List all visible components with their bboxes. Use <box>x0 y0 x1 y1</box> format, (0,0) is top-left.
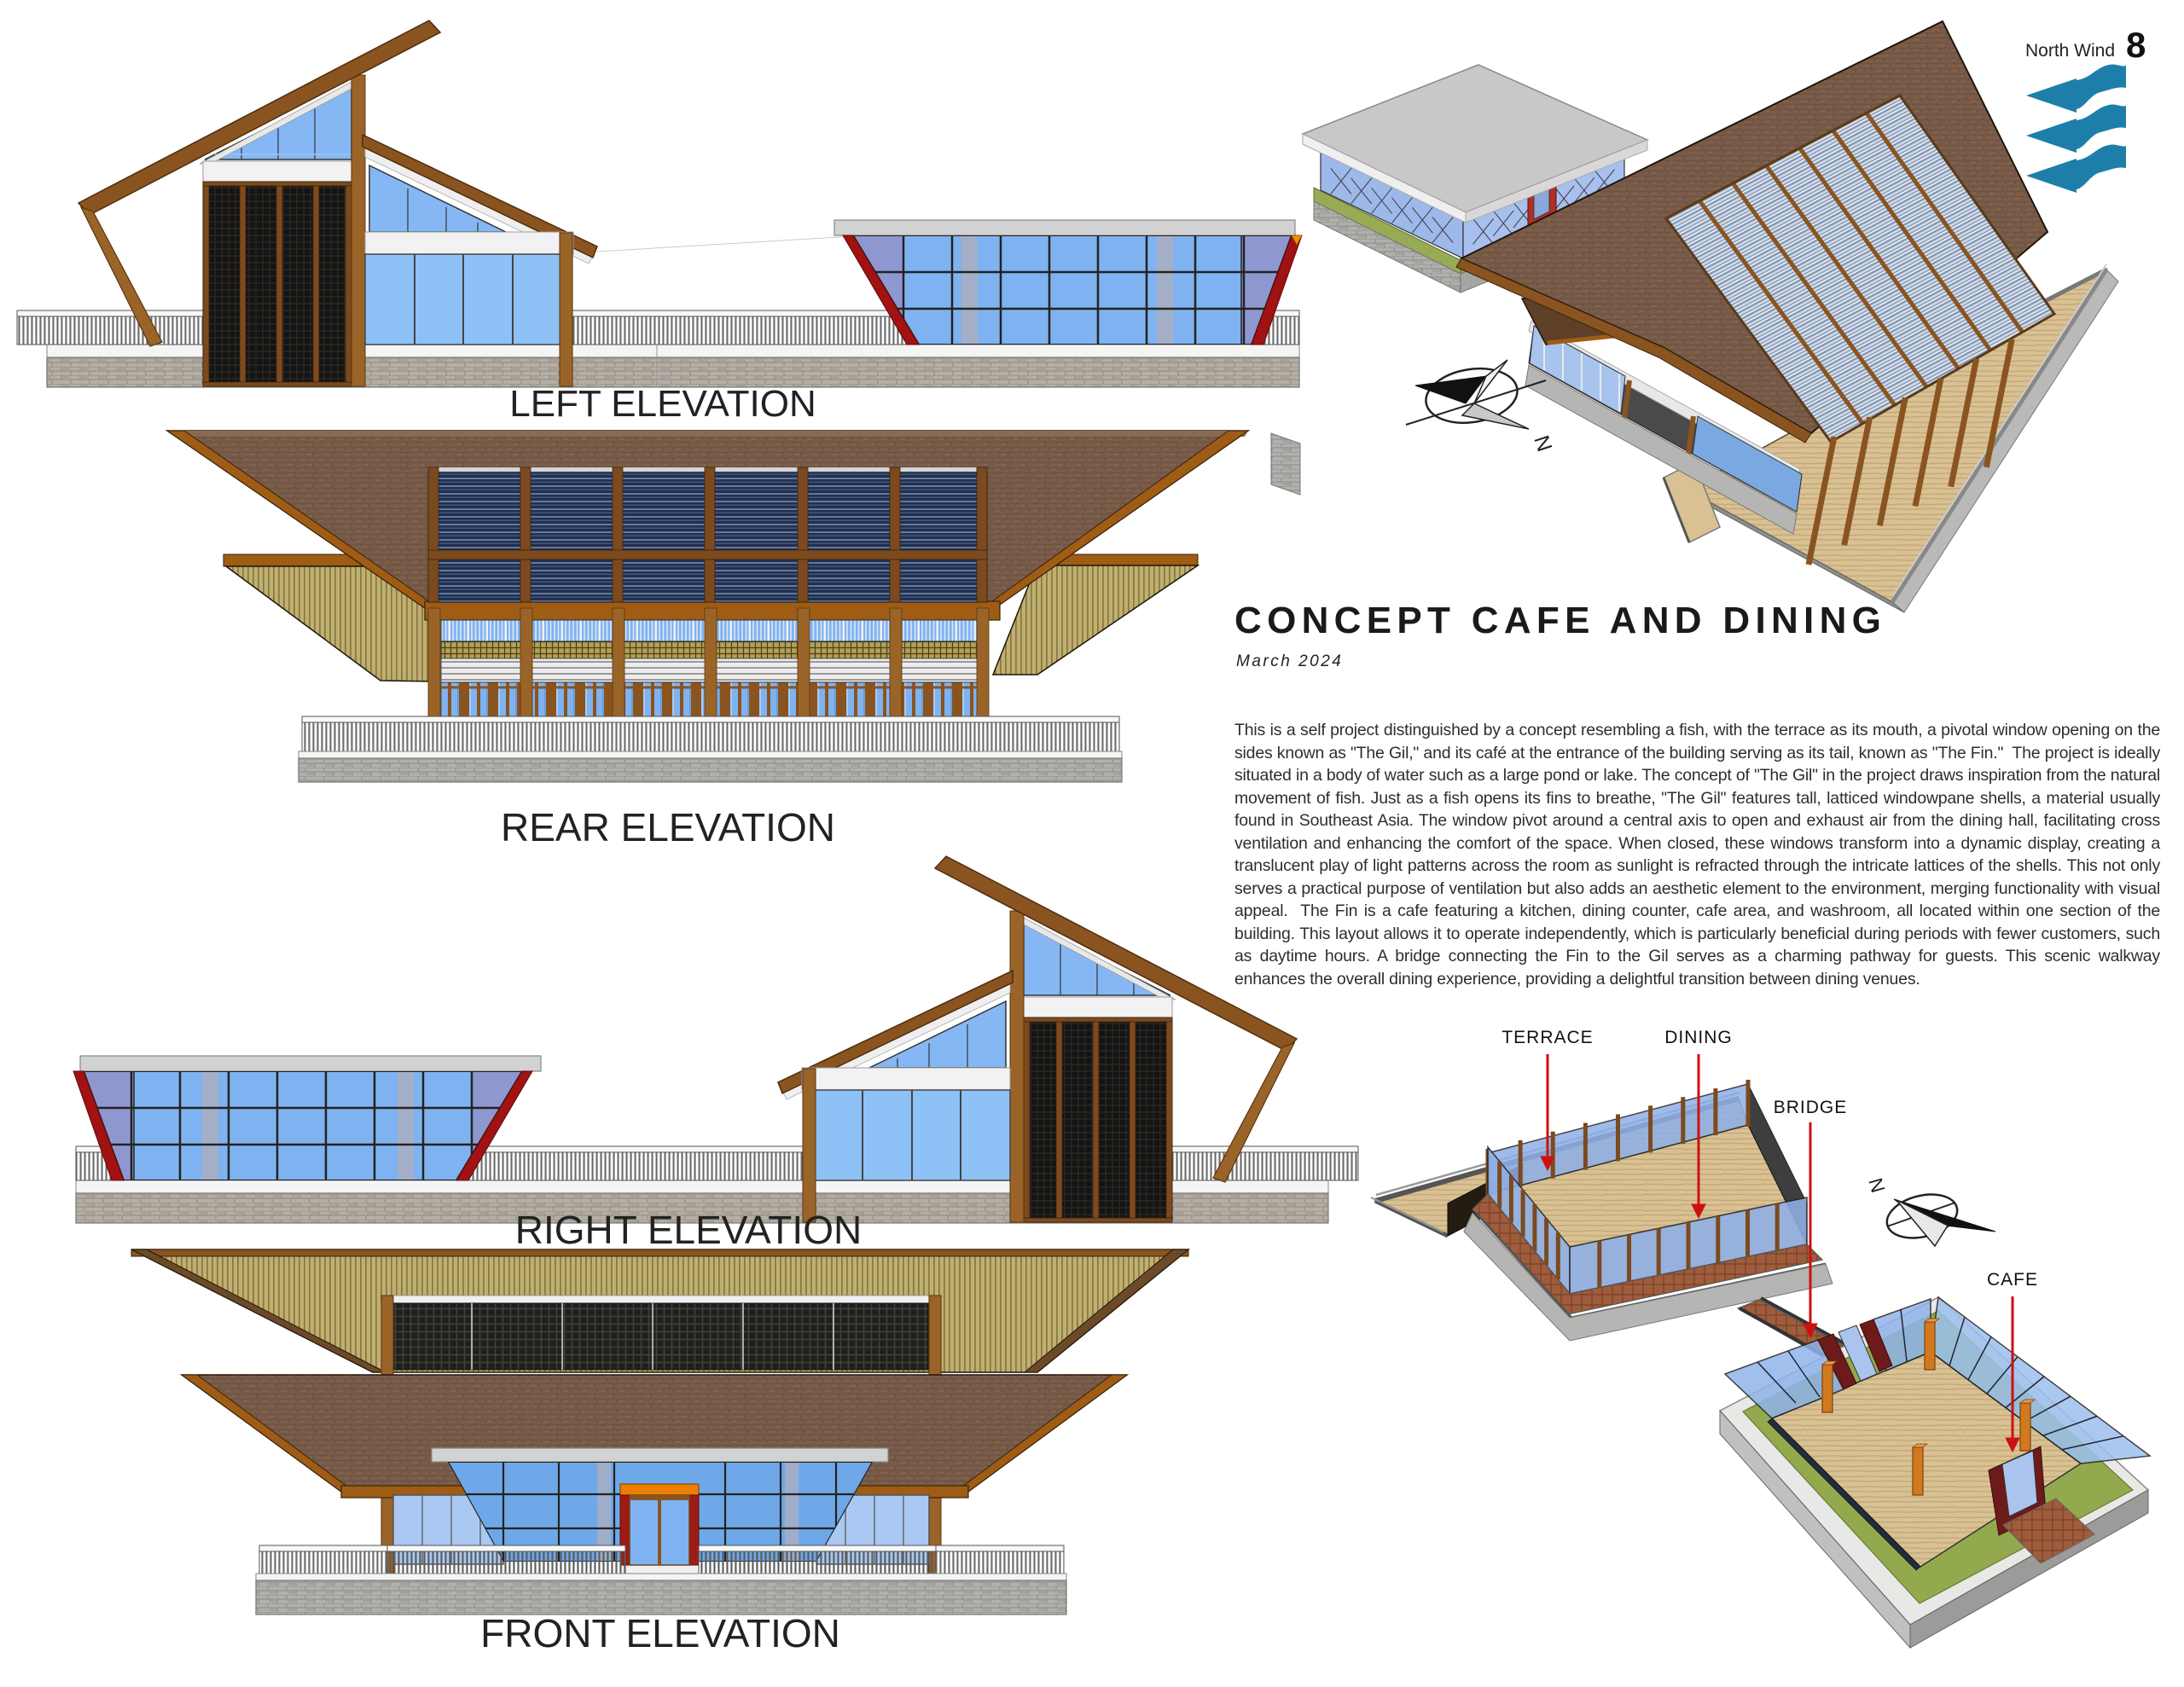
svg-text:CAFE: CAFE <box>1987 1270 2038 1290</box>
svg-text:BRIDGE: BRIDGE <box>1774 1098 1848 1117</box>
svg-text:North Wind: North Wind <box>2025 41 2115 61</box>
svg-text:N: N <box>1864 1175 1890 1195</box>
svg-text:DINING: DINING <box>1664 1028 1733 1047</box>
svg-text:TERRACE: TERRACE <box>1501 1028 1593 1047</box>
svg-text:REAR ELEVATION: REAR ELEVATION <box>501 805 835 849</box>
svg-text:LEFT ELEVATION: LEFT ELEVATION <box>509 383 816 425</box>
svg-text:8: 8 <box>2126 25 2146 65</box>
svg-text:N: N <box>1529 432 1556 455</box>
svg-text:FRONT ELEVATION: FRONT ELEVATION <box>480 1611 840 1655</box>
svg-text:RIGHT ELEVATION: RIGHT ELEVATION <box>515 1208 862 1252</box>
